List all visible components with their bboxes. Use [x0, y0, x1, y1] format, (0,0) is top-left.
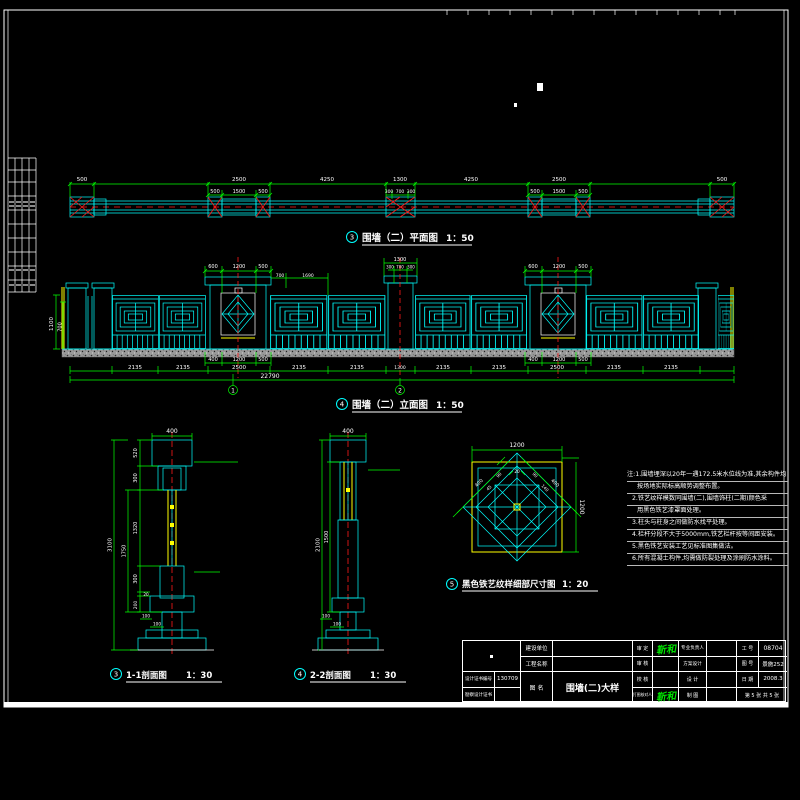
date-label: 日 期	[737, 672, 759, 688]
scheme-design-value	[707, 657, 737, 673]
dim-label: 2135	[607, 365, 621, 371]
cad-drawing-sheet: { "plan": { "badge": "3", "title": "围墙（二…	[0, 0, 800, 800]
section2-title: 4 2-2剖面图 1：30	[295, 669, 407, 683]
view-scale: 1：30	[370, 671, 396, 681]
dim-label: 500	[530, 189, 540, 195]
dim-label: 1200	[578, 499, 585, 514]
sheet-count: 第 5 张 共 5 张	[737, 688, 787, 704]
project-label: 工程名称	[521, 657, 553, 673]
dim-label: 1300	[394, 365, 406, 371]
view-scale: 1：20	[562, 580, 588, 590]
dim-label: 2500	[552, 177, 566, 183]
dim-label: 2135	[128, 365, 142, 371]
elevation-title: 4 围墙（二）立面图 1：50	[337, 399, 464, 413]
owner-label: 建设单位	[521, 641, 553, 657]
dim-label: 1200	[233, 357, 246, 363]
dim-label: 500	[77, 177, 88, 183]
dim-label: 2500	[550, 365, 564, 371]
revision-strip	[8, 158, 36, 292]
dim-label: 1100	[49, 317, 55, 331]
sheet-frame	[4, 10, 788, 707]
dim-label: 700	[396, 265, 404, 270]
notes-block: 注:1.围墙埋深以20年一遇172.5米水位线为准,其余构件均 按场地实际标高顺…	[627, 471, 788, 567]
dim-label: 2500	[232, 365, 246, 371]
signature: 靳和	[655, 688, 676, 704]
dim-label: 1500	[324, 531, 330, 544]
dim-label: 1500	[233, 189, 246, 195]
dim-label: 1200	[553, 357, 566, 363]
plan-dim-labels: 500 2500 4250 1300 4250 2500 500 500 150…	[77, 177, 728, 195]
job-no-value: 08704	[759, 641, 787, 657]
dim-label: 2135	[350, 365, 364, 371]
view-title: 围墙（二）平面图	[362, 232, 438, 244]
note-line: 按场地实际标高顺势调整布置。	[627, 483, 788, 494]
scheme-design-label: 方案设计	[679, 657, 707, 673]
small-mark	[537, 83, 543, 91]
dim-label: 100	[333, 622, 341, 627]
note-line: 3.柱头与柱身之间做防水找平处理。	[627, 519, 788, 530]
view-title: 围墙（二）立面图	[352, 399, 428, 411]
dim-label: 700	[396, 189, 405, 195]
plot-check-signature: 靳和	[653, 688, 679, 704]
cert-value: 130709	[495, 672, 521, 688]
dim-label: 500	[578, 189, 588, 195]
view-title: 2-2剖面图	[310, 670, 351, 681]
discipline-lead-value	[707, 641, 737, 657]
note-line: 注:1.围墙埋深以20年一遇172.5米水位线为准,其余构件均	[627, 471, 788, 482]
cert2-value	[495, 688, 521, 704]
dim-label: 1200	[553, 264, 566, 270]
dim-label: 500	[258, 189, 268, 195]
dim-label: 2500	[232, 177, 246, 183]
cut-mark-1: 1	[229, 374, 238, 395]
dim-label: 300	[407, 189, 416, 195]
title-block: 建设单位 工程名称 设计证书编号 130709 勘察设计证书 图 名 围墙(二)…	[462, 640, 786, 702]
dim-label: 100	[153, 622, 161, 627]
drafter-label: 制 图	[679, 688, 707, 704]
dim-label: 20	[143, 592, 149, 597]
drawing-name: 围墙(二)大样	[553, 672, 633, 703]
dim-label: 500	[717, 177, 728, 183]
dim-label: 600	[528, 264, 538, 270]
dim-label: 500	[578, 264, 588, 270]
dwg-no-label: 图 号	[737, 657, 759, 673]
small-mark	[514, 103, 517, 107]
dim-label: 700	[276, 273, 285, 279]
view-scale: 1：50	[446, 234, 474, 244]
dim-label: 400	[342, 428, 354, 435]
cut-label: 1	[231, 388, 235, 395]
detail-view: 1200 1200 20 400 400 90 140 90 45 5 黑色铁艺…	[447, 442, 599, 591]
cut-label: 2	[398, 388, 402, 395]
view-title: 黑色铁艺纹样细部尺寸图	[462, 579, 556, 590]
dim-label: 500	[578, 357, 588, 363]
view-badge: 5	[450, 581, 454, 589]
dim-label: 1200	[233, 264, 246, 270]
proofer-signature	[653, 672, 679, 688]
designer-label: 设 计	[679, 672, 707, 688]
dim-label: 1320	[133, 522, 139, 535]
dim-label: 90	[495, 471, 503, 479]
designer-value	[707, 672, 737, 688]
dim-label: 1750	[122, 545, 128, 558]
plan-title: 3 围墙（二）平面图 1：50	[347, 232, 474, 246]
approver-signature: 靳和	[653, 641, 679, 657]
dim-label: 300	[385, 189, 394, 195]
logo-cell	[463, 641, 521, 672]
dim-label: 300	[386, 265, 394, 270]
view-badge: 3	[350, 234, 354, 242]
note-line: 6.所有混凝土构件,均需做防裂处理及涂刷防水涂料。	[627, 555, 788, 566]
dim-label: 600	[208, 264, 218, 270]
cert2-label: 勘察设计证书	[463, 688, 495, 704]
dim-label: 90	[531, 471, 539, 479]
cut-mark-2: 2	[396, 378, 405, 395]
approver-label: 审 定	[633, 641, 653, 657]
dim-label: 1300	[393, 177, 407, 183]
view-title: 1-1剖面图	[126, 670, 167, 681]
job-no-label: 工 号	[737, 641, 759, 657]
view-badge: 4	[340, 401, 345, 409]
dim-label: 100	[322, 614, 330, 619]
drafter-value	[707, 688, 737, 704]
dim-label: 20	[514, 469, 520, 474]
signature: 靳和	[655, 641, 676, 657]
dim-label: 3100	[108, 538, 114, 552]
note-line: 用黑色铁艺漆罩面处理。	[627, 507, 788, 518]
dim-label: 400	[528, 357, 538, 363]
section1-title: 3 1-1剖面图 1：30	[111, 669, 223, 683]
dim-label: 500	[258, 264, 268, 270]
note-line: 5.黑色铁艺安装工艺见标准图集做法。	[627, 543, 788, 554]
dim-label: 2135	[292, 365, 306, 371]
elevation-view: 600 1200 500 700 1690 600 1200 500 1300 …	[49, 257, 734, 412]
dim-label: 200	[133, 601, 139, 610]
dim-label: 400	[208, 357, 218, 363]
dim-label: 1690	[302, 273, 314, 279]
dim-label: 2135	[664, 365, 678, 371]
project-value	[553, 657, 633, 673]
note-line: 2.铁艺纹样模数同围墙(二),围墙饰柱(二期)颜色采	[627, 495, 788, 506]
date-value: 2008.3	[759, 672, 787, 688]
cert-label: 设计证书编号	[463, 672, 495, 688]
dim-label: 300	[133, 574, 139, 584]
plan-view: 500 2500 4250 1300 4250 2500 500 500 150…	[68, 177, 736, 245]
dim-label: 2100	[316, 538, 322, 552]
dwg-no-value: 景施252	[759, 657, 787, 673]
owner-value	[553, 641, 633, 657]
dim-label: 520	[133, 448, 139, 458]
dim-label: 22790	[260, 373, 279, 380]
section-2-2: 400 2100 1500 100 100 4 2-2剖面图 1：30	[295, 428, 407, 682]
dim-label: 1200	[509, 442, 524, 449]
dim-label: 45	[485, 484, 493, 492]
detail-title: 5 黑色铁艺纹样细部尺寸图 1：20	[447, 579, 599, 592]
dim-label: 1300	[394, 257, 407, 263]
dim-label: 700	[58, 322, 64, 332]
dim-label: 2135	[176, 365, 190, 371]
dim-label: 1500	[553, 189, 566, 195]
dim-label: 500	[258, 357, 268, 363]
note-line: 4.栏杆分段不大于5000mm,铁艺栏杆按等间距安装。	[627, 531, 788, 542]
view-badge: 4	[298, 671, 303, 679]
view-scale: 1：30	[186, 671, 212, 681]
section-1-1: 400 520 300 1320 300 20 200 1750 3100 10…	[108, 428, 239, 682]
drawing-name-label: 图 名	[521, 672, 553, 703]
dim-label: 2135	[492, 365, 506, 371]
plot-check-label: 打图核对人	[633, 688, 653, 704]
view-badge: 3	[114, 671, 118, 679]
dim-label: 4250	[320, 177, 334, 183]
dim-label: 2135	[436, 365, 450, 371]
dim-label: 500	[210, 189, 220, 195]
view-scale: 1：50	[436, 401, 464, 411]
dim-label: 4250	[464, 177, 478, 183]
dim-label: 300	[133, 473, 139, 483]
discipline-lead-label: 专业负责人	[679, 641, 707, 657]
proofer-label: 校 核	[633, 672, 653, 688]
dim-label: 100	[142, 614, 150, 619]
dim-label: 400	[166, 428, 178, 435]
checker-signature	[653, 657, 679, 673]
dim-label: 300	[407, 265, 415, 270]
checker-label: 审 核	[633, 657, 653, 673]
